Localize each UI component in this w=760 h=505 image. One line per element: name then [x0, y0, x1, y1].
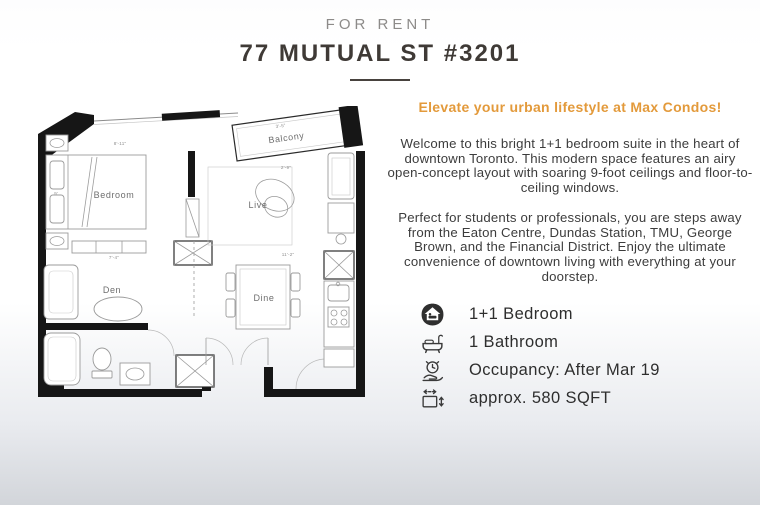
listing-headline: Elevate your urban lifestyle at Max Cond…	[386, 99, 754, 115]
kitchen-area	[324, 251, 354, 367]
room-label-den: Den	[103, 285, 121, 295]
entry-area	[176, 338, 326, 389]
dimension-label: 2'-9"	[281, 165, 291, 170]
room-label-live: Live	[249, 200, 268, 210]
feature-label: 1 Bathroom	[469, 333, 558, 352]
feature-occupancy: Occupancy: After Mar 19	[420, 358, 754, 382]
feature-bedroom: 1+1 Bedroom	[420, 302, 754, 326]
bedroom-area: Bedroom 8'-11" 9'	[46, 135, 146, 253]
dimension-label: 9'	[54, 191, 58, 196]
title-underline	[350, 79, 410, 81]
feature-list: 1+1 Bedroom 1 Bathroom	[420, 302, 754, 410]
listing-details: Elevate your urban lifestyle at Max Cond…	[386, 99, 754, 410]
room-label-bedroom: Bedroom	[94, 190, 135, 200]
feature-bathroom: 1 Bathroom	[420, 330, 754, 354]
room-label-dine: Dine	[254, 293, 275, 303]
feature-label: 1+1 Bedroom	[469, 305, 573, 324]
feature-sqft: approx. 580 SQFT	[420, 386, 754, 410]
page-title: 77 MUTUAL ST #3201	[0, 40, 760, 68]
occupancy-icon	[420, 358, 445, 383]
dimension-label: 7'-4"	[109, 255, 119, 260]
bathroom-icon	[420, 330, 445, 355]
header: FOR RENT 77 MUTUAL ST #3201	[0, 16, 760, 81]
floorplan-svg: 3'-5" Balcony Bedroom 8'-11"	[30, 106, 370, 408]
for-rent-label: FOR RENT	[0, 16, 760, 33]
bathroom-area	[44, 330, 174, 385]
listing-paragraph-1: Welcome to this bright 1+1 bedroom suite…	[386, 137, 754, 196]
listing-paragraph-2: Perfect for students or professionals, y…	[386, 211, 754, 285]
floorplan-image: 3'-5" Balcony Bedroom 8'-11"	[30, 106, 370, 408]
dimension-label: 8'-11"	[114, 141, 127, 146]
living-area: Live 2'-9"	[208, 153, 354, 245]
dimension-label: 11'-2"	[282, 252, 295, 257]
feature-label: Occupancy: After Mar 19	[469, 361, 660, 380]
feature-label: approx. 580 SQFT	[469, 389, 611, 408]
sqft-icon	[420, 386, 445, 411]
dining-area: Dine 11'-2"	[226, 252, 300, 329]
flyer-page: FOR RENT 77 MUTUAL ST #3201	[0, 0, 760, 505]
bedroom-icon	[420, 302, 445, 327]
